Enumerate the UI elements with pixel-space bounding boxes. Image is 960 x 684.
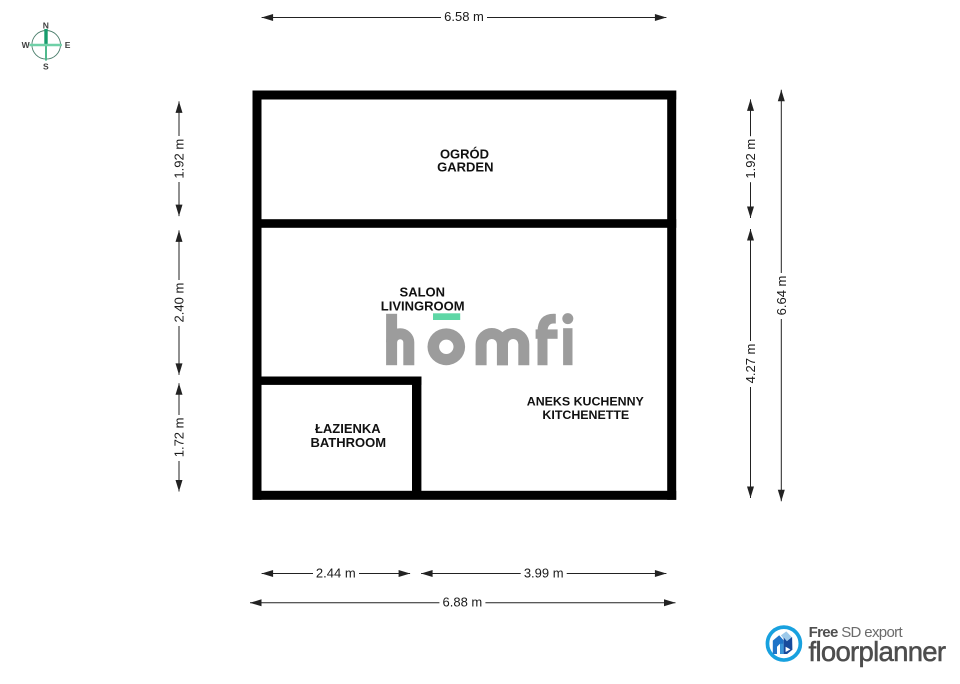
svg-text:LIVINGROOM: LIVINGROOM [381, 299, 465, 314]
svg-text:N: N [43, 20, 49, 30]
svg-text:SALON: SALON [400, 285, 446, 300]
svg-text:BATHROOM: BATHROOM [311, 435, 387, 450]
svg-text:S: S [43, 62, 49, 72]
svg-text:3.99 m: 3.99 m [524, 565, 564, 580]
svg-text:ANEKS KUCHENNY: ANEKS KUCHENNY [527, 395, 645, 409]
svg-text:6.58 m: 6.58 m [444, 9, 484, 24]
svg-text:1.92 m: 1.92 m [172, 139, 187, 179]
svg-text:floorplanner: floorplanner [809, 636, 946, 667]
svg-text:GARDEN: GARDEN [437, 160, 493, 175]
svg-text:2.40 m: 2.40 m [172, 283, 187, 323]
svg-text:2.44 m: 2.44 m [316, 565, 356, 580]
svg-text:6.64 m: 6.64 m [774, 276, 789, 316]
svg-text:6.88 m: 6.88 m [443, 595, 483, 610]
svg-text:ŁAZIENKA: ŁAZIENKA [315, 421, 381, 436]
svg-text:1.92 m: 1.92 m [743, 139, 758, 179]
svg-text:KITCHENETTE: KITCHENETTE [542, 408, 629, 422]
svg-text:1.72 m: 1.72 m [172, 418, 187, 458]
svg-text:W: W [22, 40, 31, 50]
svg-text:4.27 m: 4.27 m [743, 344, 758, 384]
svg-text:E: E [65, 40, 71, 50]
